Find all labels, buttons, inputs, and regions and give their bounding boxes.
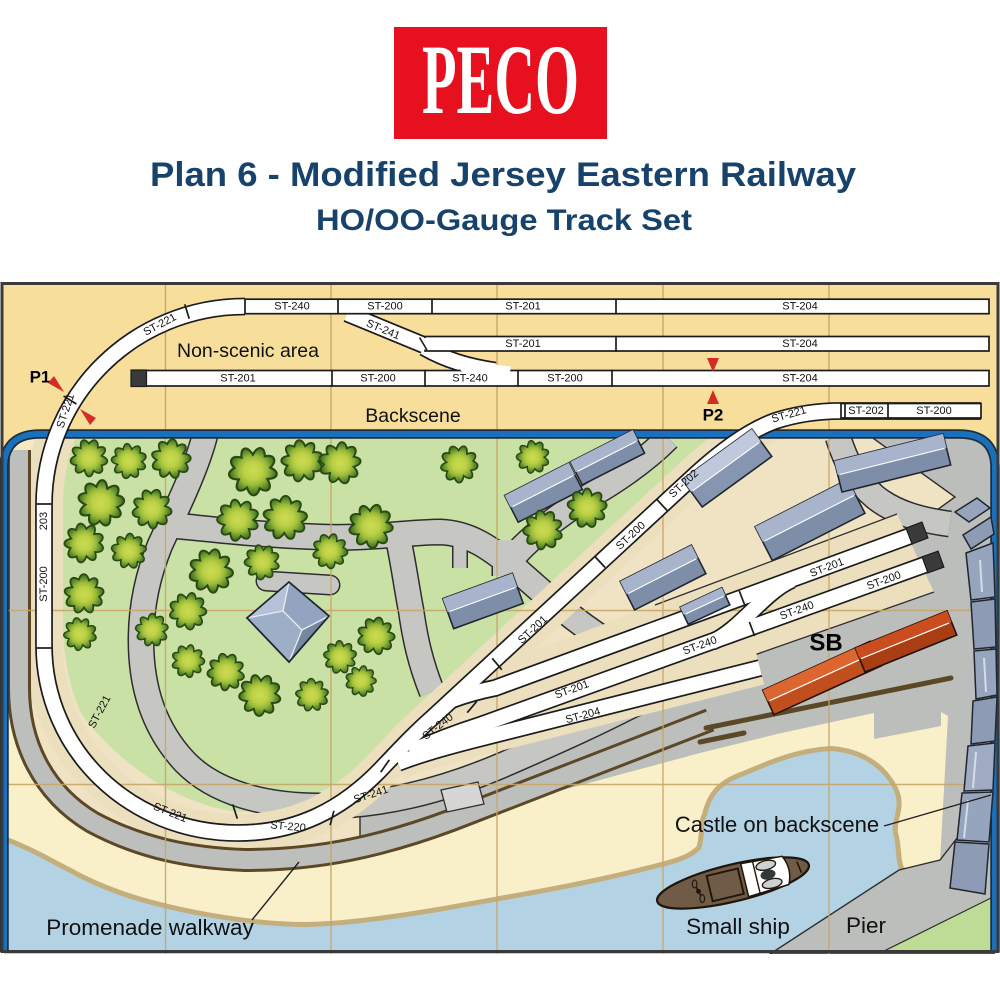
svg-text:Non-scenic area: Non-scenic area	[177, 340, 319, 362]
svg-text:PECO: PECO	[422, 24, 579, 135]
svg-text:Small ship: Small ship	[686, 914, 790, 939]
svg-text:P2: P2	[703, 405, 724, 424]
svg-text:Backscene: Backscene	[365, 405, 460, 427]
svg-text:ST-201: ST-201	[505, 338, 540, 350]
svg-text:ST-202: ST-202	[848, 405, 883, 417]
svg-text:ST-204: ST-204	[782, 338, 817, 350]
svg-text:ST-204: ST-204	[782, 301, 817, 313]
svg-text:Castle on backscene: Castle on backscene	[675, 812, 879, 837]
svg-text:ST-200: ST-200	[38, 566, 50, 601]
svg-text:ST-240: ST-240	[452, 373, 487, 385]
svg-text:ST-200: ST-200	[547, 372, 582, 384]
svg-text:ST-240: ST-240	[274, 301, 309, 313]
svg-text:ST-200: ST-200	[916, 405, 951, 417]
svg-text:Pier: Pier	[846, 913, 887, 938]
svg-text:SB: SB	[809, 629, 842, 656]
svg-text:ST-200: ST-200	[360, 372, 395, 384]
svg-text:P1: P1	[30, 367, 51, 386]
svg-text:203: 203	[38, 512, 50, 530]
svg-text:HO/OO-Gauge Track Set: HO/OO-Gauge Track Set	[316, 204, 692, 237]
svg-text:Plan 6 - Modified Jersey Easte: Plan 6 - Modified Jersey Eastern Railway	[150, 156, 856, 194]
svg-text:ST-201: ST-201	[505, 301, 540, 313]
svg-text:ST-201: ST-201	[220, 372, 255, 384]
svg-text:ST-204: ST-204	[782, 372, 817, 384]
svg-text:Promenade walkway: Promenade walkway	[46, 915, 254, 940]
svg-text:ST-200: ST-200	[367, 301, 402, 313]
